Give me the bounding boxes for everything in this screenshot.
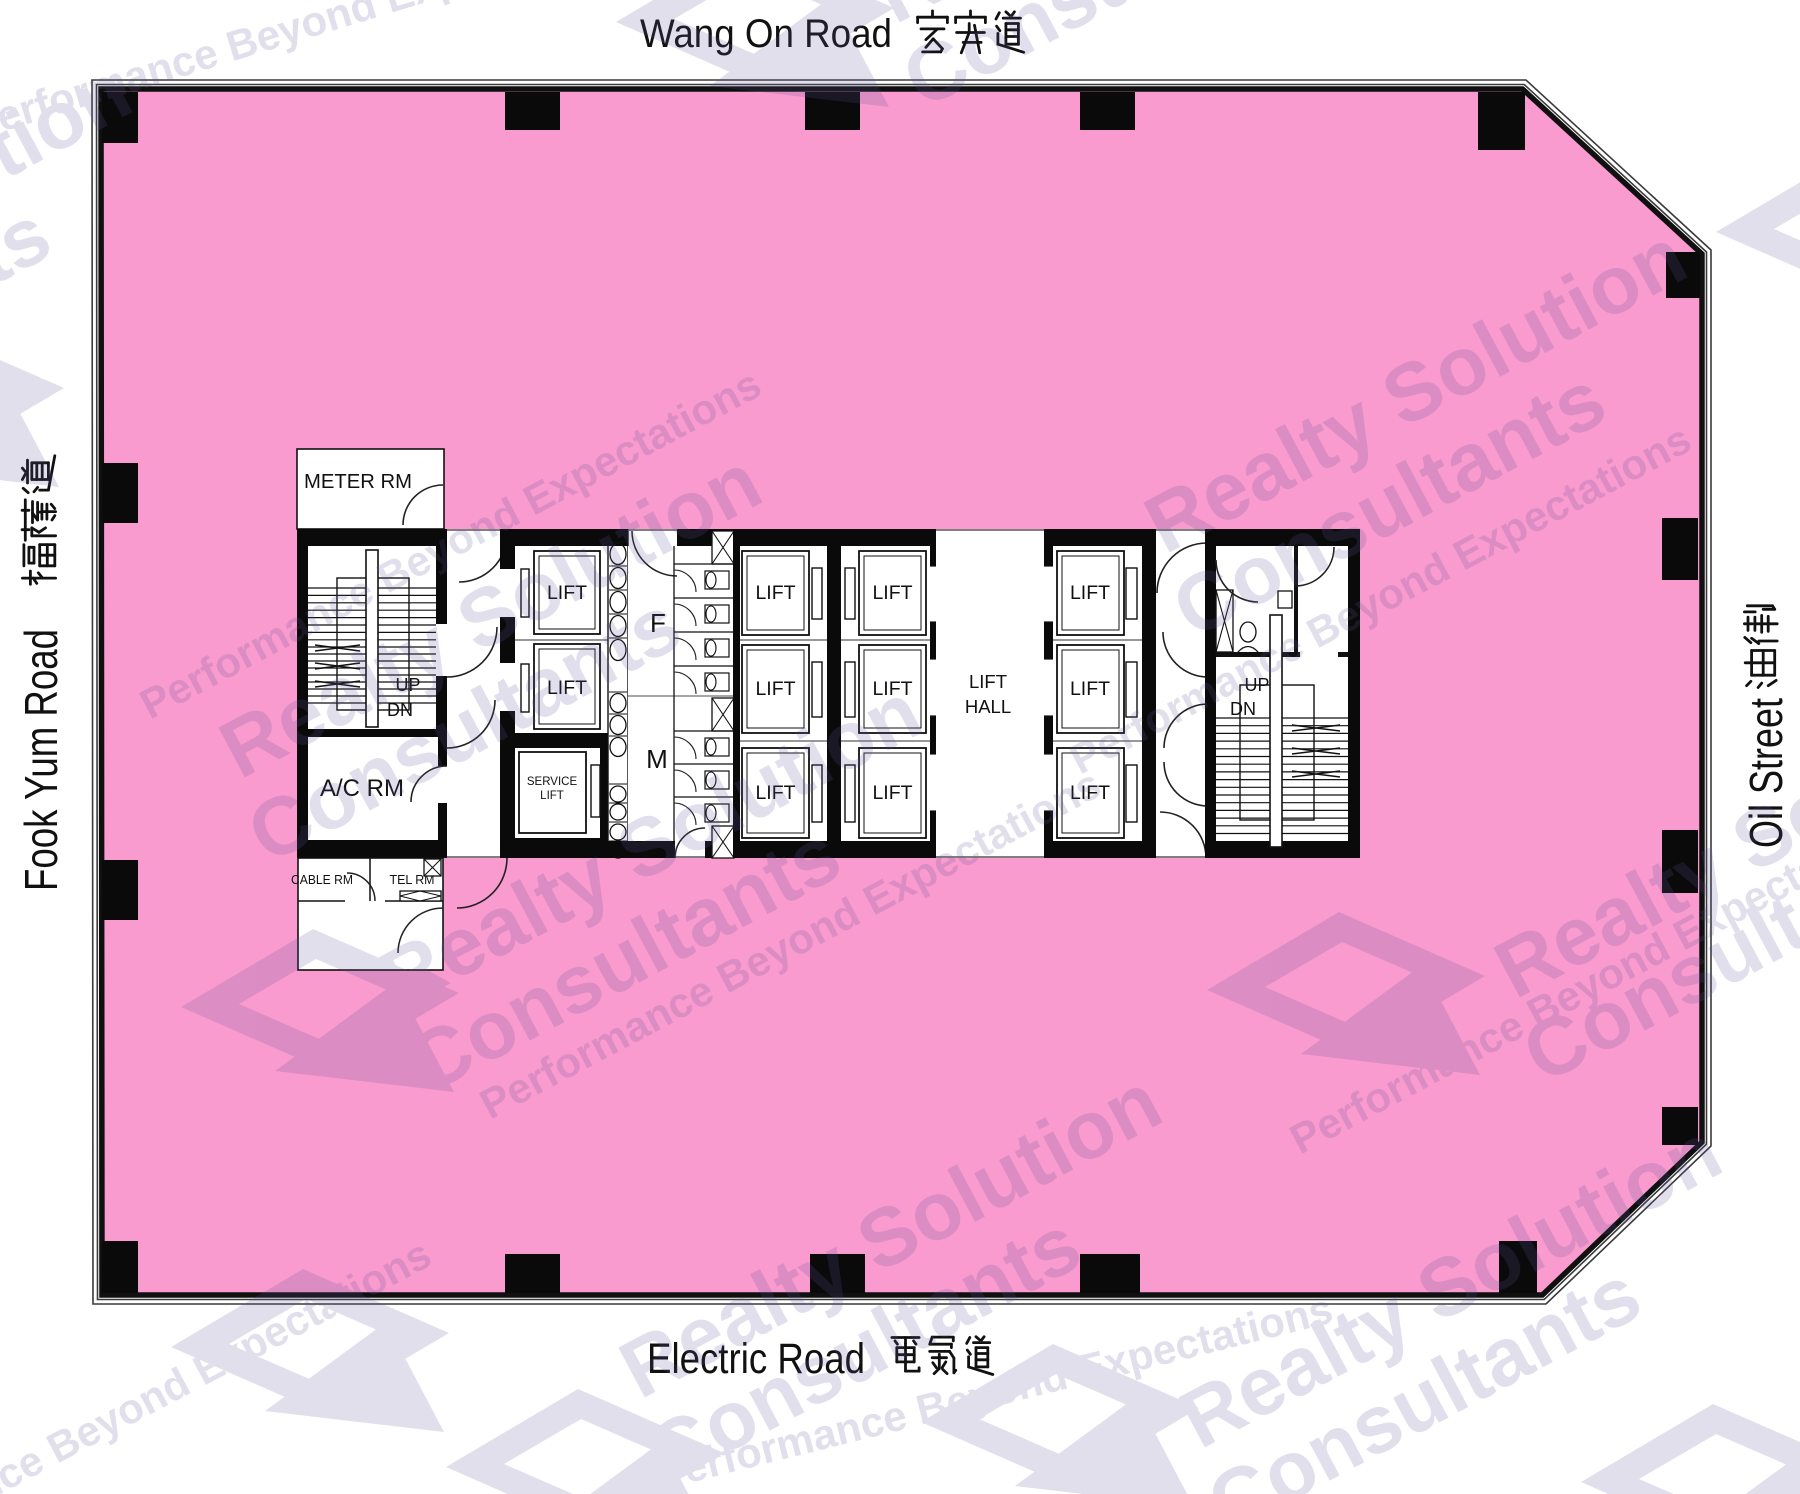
svg-text:HALL: HALL xyxy=(965,696,1011,717)
svg-text:LIFT: LIFT xyxy=(1070,582,1110,604)
svg-text:LIFT: LIFT xyxy=(872,782,912,804)
svg-text:LIFT: LIFT xyxy=(969,671,1007,692)
svg-text:M: M xyxy=(646,744,668,774)
svg-text:SERVICE: SERVICE xyxy=(527,776,578,788)
svg-text:LIFT: LIFT xyxy=(872,582,912,604)
svg-text:LIFT: LIFT xyxy=(540,790,564,802)
svg-text:LIFT: LIFT xyxy=(755,582,795,604)
svg-text:Fook Yum Road: Fook Yum Road xyxy=(15,629,67,891)
svg-text:LIFT: LIFT xyxy=(755,678,795,700)
svg-text:METER RM: METER RM xyxy=(304,471,412,493)
svg-text:LIFT: LIFT xyxy=(1070,678,1110,700)
svg-text:CABLE RM: CABLE RM xyxy=(291,873,353,887)
